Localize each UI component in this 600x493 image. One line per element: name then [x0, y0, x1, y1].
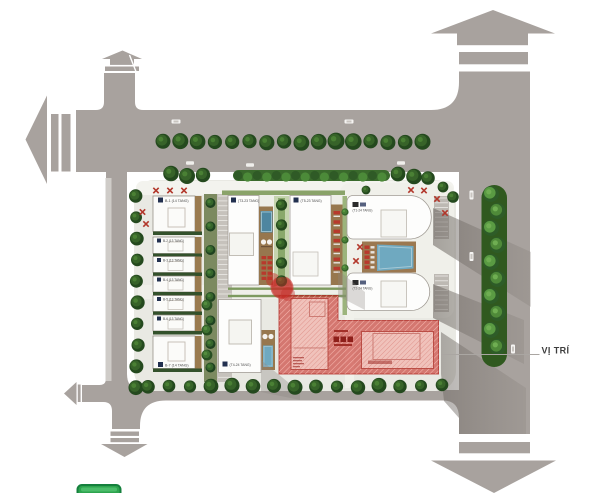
svg-text:B-2 (13 TANG): B-2 (13 TANG) [163, 239, 184, 243]
svg-text:B-4 (13 TANG): B-4 (13 TANG) [163, 278, 184, 282]
svg-text:B-5 (13 TANG): B-5 (13 TANG) [163, 298, 184, 302]
svg-text:(T5-23 TANG): (T5-23 TANG) [301, 199, 322, 203]
svg-text:B-7 (14 TANG): B-7 (14 TANG) [165, 364, 189, 368]
svg-text:VỊ TRÍ: VỊ TRÍ [542, 346, 570, 356]
svg-text:(T3-23 TANG): (T3-23 TANG) [238, 199, 259, 203]
svg-text:B-3 (13 TANG): B-3 (13 TANG) [163, 259, 184, 263]
svg-text:B-6 (13 TANG): B-6 (13 TANG) [163, 317, 184, 321]
svg-text:(T1-24 TANG): (T1-24 TANG) [353, 209, 373, 213]
svg-text:B-1 (14 TANG): B-1 (14 TANG) [165, 199, 189, 203]
svg-text:(T4-24 TANG): (T4-24 TANG) [230, 363, 251, 367]
